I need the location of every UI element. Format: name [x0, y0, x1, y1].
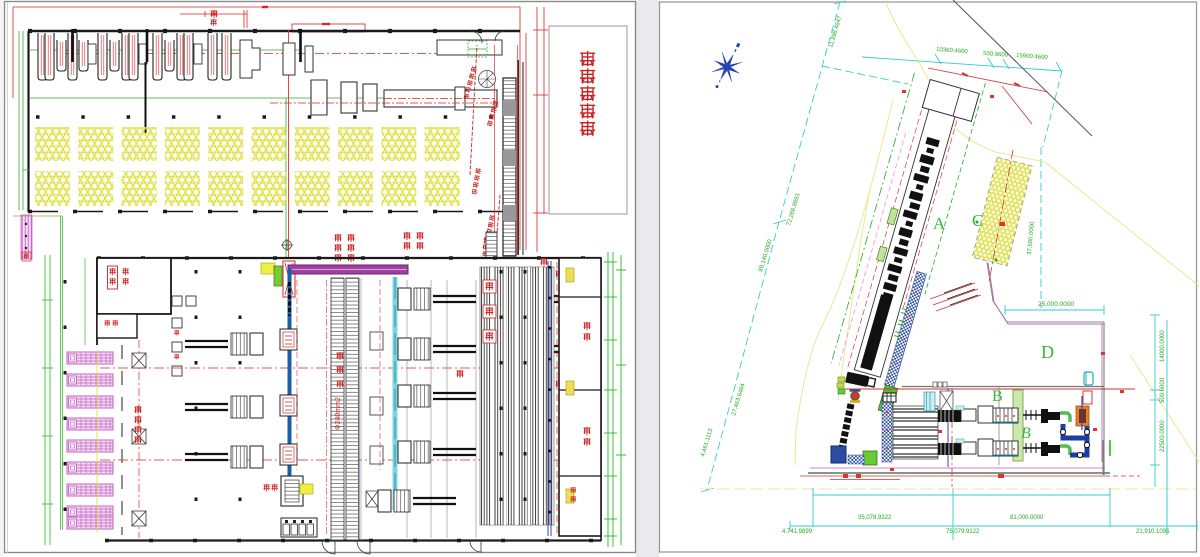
- svg-text:21,910.1095: 21,910.1095: [1136, 529, 1170, 535]
- svg-text:B: B: [1021, 425, 1031, 442]
- svg-text:81,000.0000: 81,000.0000: [1010, 515, 1044, 521]
- svg-text:14000.0000: 14000.0000: [1160, 330, 1166, 362]
- svg-text:35,078.9322: 35,078.9322: [858, 515, 892, 521]
- svg-text:4,741.9899: 4,741.9899: [782, 529, 813, 535]
- svg-text:C: C: [972, 211, 983, 230]
- svg-text:A: A: [933, 214, 946, 233]
- svg-text:22500.0000: 22500.0000: [1160, 420, 1166, 452]
- svg-text:75,079.9122: 75,079.9122: [946, 529, 980, 535]
- svg-text:Φ240mm2: Φ240mm2: [335, 397, 342, 430]
- svg-text:B: B: [992, 388, 1003, 405]
- svg-text:D: D: [1041, 342, 1054, 362]
- svg-text:500.6000: 500.6000: [1160, 377, 1166, 403]
- svg-text:25,000.0000: 25,000.0000: [1038, 301, 1075, 308]
